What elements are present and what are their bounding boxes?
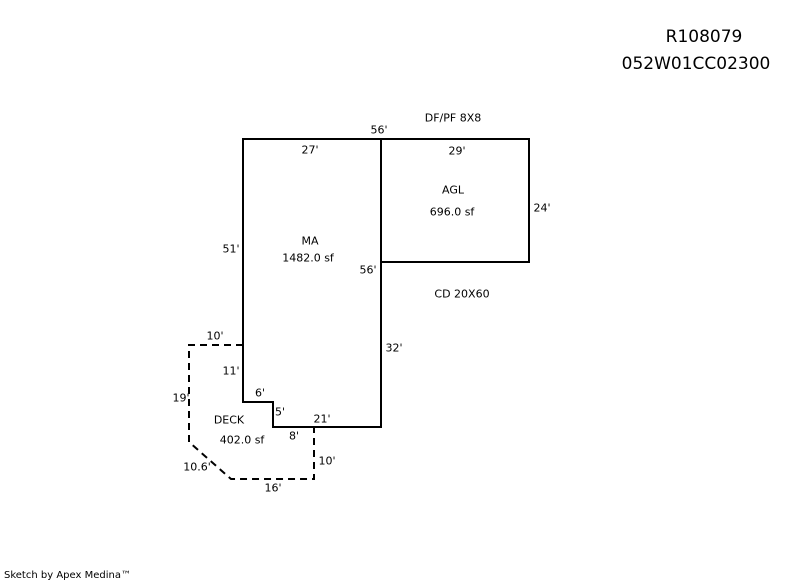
parcel-id: 052W01CC02300 [622, 54, 771, 74]
dim-deck-right-10: 10' [318, 455, 335, 468]
dim-deck-diag-10-6: 10.6' [183, 461, 211, 474]
dim-ma-top-27: 27' [301, 144, 318, 157]
record-id: R108079 [666, 27, 743, 47]
dim-ma-right-32: 32' [385, 342, 402, 355]
dim-agl-right-24: 24' [533, 202, 550, 215]
deck-outline [189, 345, 314, 479]
dim-notch-5: 5' [275, 406, 285, 419]
dim-deck-bottom-16: 16' [264, 482, 281, 495]
dim-deck-left-19: 19' [172, 392, 189, 405]
area-sqft-ma: 1482.0 sf [282, 252, 334, 265]
sketch-page: R108079 052W01CC02300 DF/PF 8X8 CD 20X60… [0, 0, 800, 587]
annotation-cd: CD 20X60 [434, 288, 489, 301]
dim-deck-11: 11' [222, 365, 239, 378]
area-sqft-deck: 402.0 sf [220, 434, 265, 447]
dim-top-56: 56' [370, 124, 387, 137]
dim-ma-bottom-21: 21' [313, 413, 330, 426]
dim-agl-top-29: 29' [448, 145, 465, 158]
dim-ma-left-51: 51' [222, 243, 239, 256]
area-code-agl: AGL [442, 184, 464, 197]
dim-mid-56: 56' [359, 264, 376, 277]
ma-outline [243, 139, 381, 427]
area-code-deck: DECK [214, 414, 244, 427]
floorplan-drawing [0, 0, 800, 587]
dim-deck-8: 8' [289, 430, 299, 443]
area-sqft-agl: 696.0 sf [430, 206, 475, 219]
dim-deck-top-10: 10' [206, 330, 223, 343]
sketch-credit: Sketch by Apex Medina™ [4, 570, 131, 582]
annotation-df-pf: DF/PF 8X8 [425, 112, 482, 125]
dim-notch-6: 6' [255, 387, 265, 400]
area-code-ma: MA [301, 235, 318, 248]
